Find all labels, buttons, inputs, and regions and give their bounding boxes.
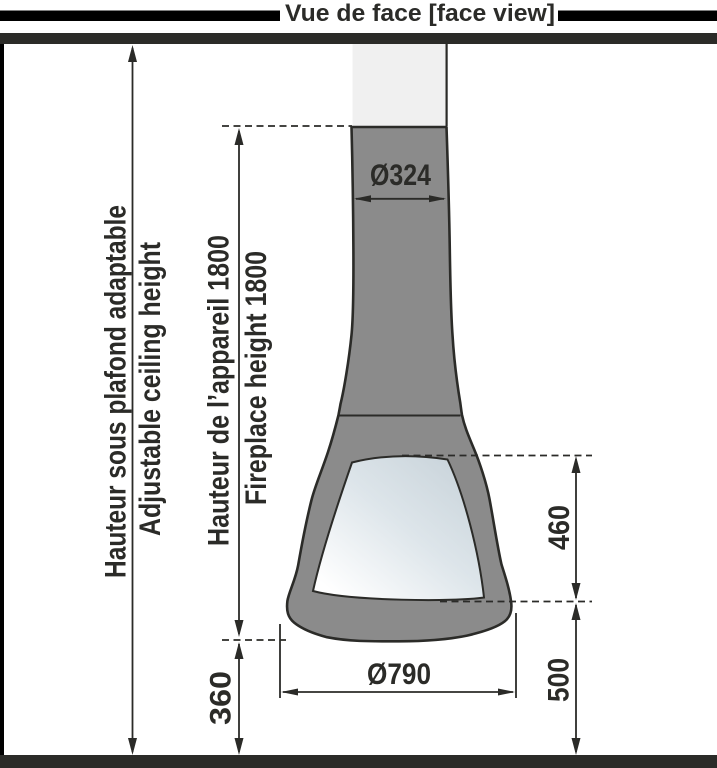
svg-text:Hauteur de l’appareil 1800: Hauteur de l’appareil 1800 bbox=[203, 235, 236, 546]
svg-text:Fireplace height 1800: Fireplace height 1800 bbox=[240, 251, 273, 505]
svg-text:Adjustable ceiling height: Adjustable ceiling height bbox=[134, 242, 167, 536]
svg-text:Ø324: Ø324 bbox=[370, 159, 431, 192]
svg-text:460: 460 bbox=[543, 505, 576, 550]
svg-text:Vue de face [face view]: Vue de face [face view] bbox=[285, 0, 555, 27]
svg-text:360: 360 bbox=[205, 671, 238, 725]
svg-text:Ø790: Ø790 bbox=[367, 658, 431, 691]
svg-text:500: 500 bbox=[543, 658, 576, 702]
svg-text:Hauteur sous plafond adaptable: Hauteur sous plafond adaptable bbox=[99, 205, 132, 578]
